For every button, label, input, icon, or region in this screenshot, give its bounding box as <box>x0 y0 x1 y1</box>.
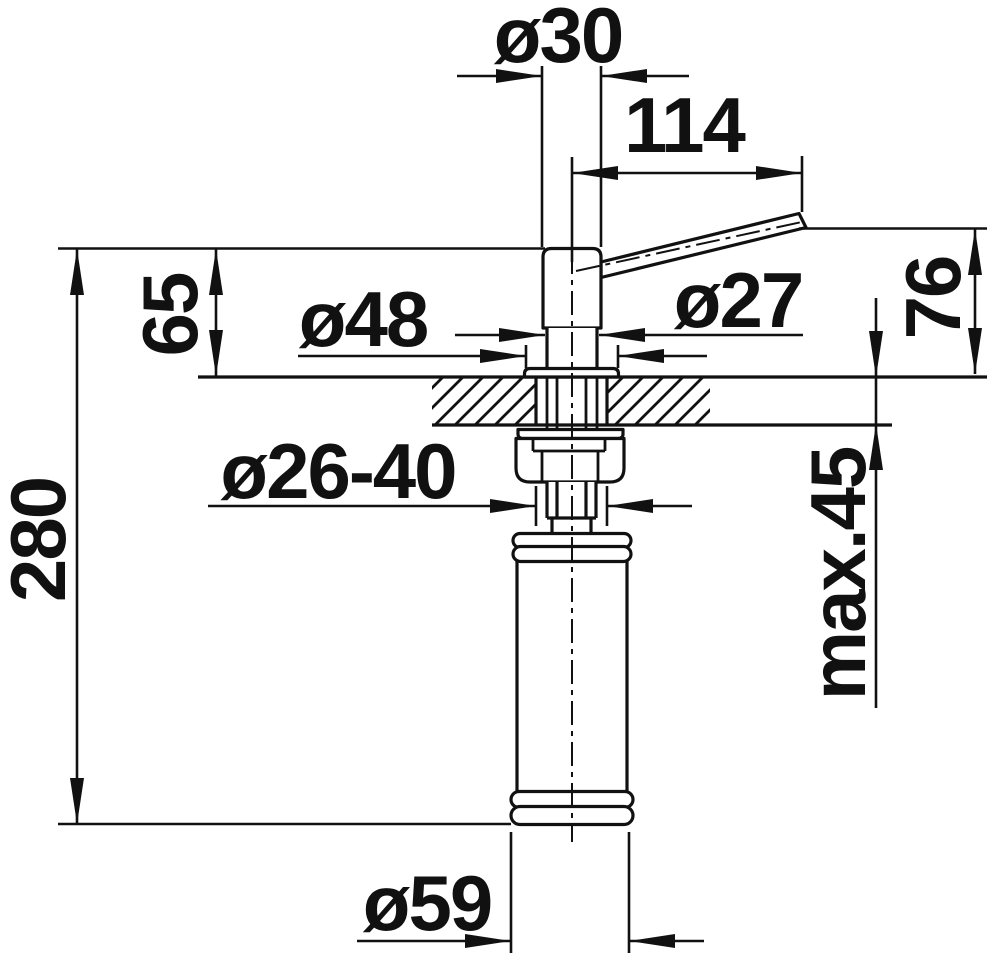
dimension-spout-outlet-height: 76 <box>799 229 987 375</box>
soap-dispenser-dimension-drawing: ø30 114 65 280 ø48 ø27 76 max.45 <box>0 0 1000 961</box>
dim-label-overall-height: 280 <box>0 478 82 602</box>
dimension-head-height: 65 <box>126 249 223 376</box>
dim-label-spout-reach: 114 <box>624 81 745 169</box>
dim-label-max-counter-thickness: max.45 <box>794 447 882 700</box>
arrowheads <box>465 934 675 948</box>
dim-label-head-height: 65 <box>126 273 214 356</box>
dim-label-mounting-hole-diameter: ø26-40 <box>220 427 455 515</box>
drawing-canvas: ø30 114 65 280 ø48 ø27 76 max.45 <box>0 0 1000 961</box>
dim-label-flange-diameter: ø48 <box>299 275 427 363</box>
dim-label-spout-tube-diameter: ø30 <box>494 0 622 79</box>
dim-label-bottle-diameter: ø59 <box>363 859 491 947</box>
dimension-bottle-diameter: ø59 <box>357 832 704 953</box>
countertop-hatch-left <box>432 378 536 425</box>
dimension-flange-diameter: ø48 <box>298 275 707 368</box>
dim-label-neck-diameter: ø27 <box>674 256 802 344</box>
countertop-section <box>198 377 987 425</box>
dimension-max-counter-thickness: max.45 <box>794 298 883 708</box>
countertop-hatch-right <box>607 378 710 425</box>
dim-label-spout-outlet-height: 76 <box>889 257 977 340</box>
